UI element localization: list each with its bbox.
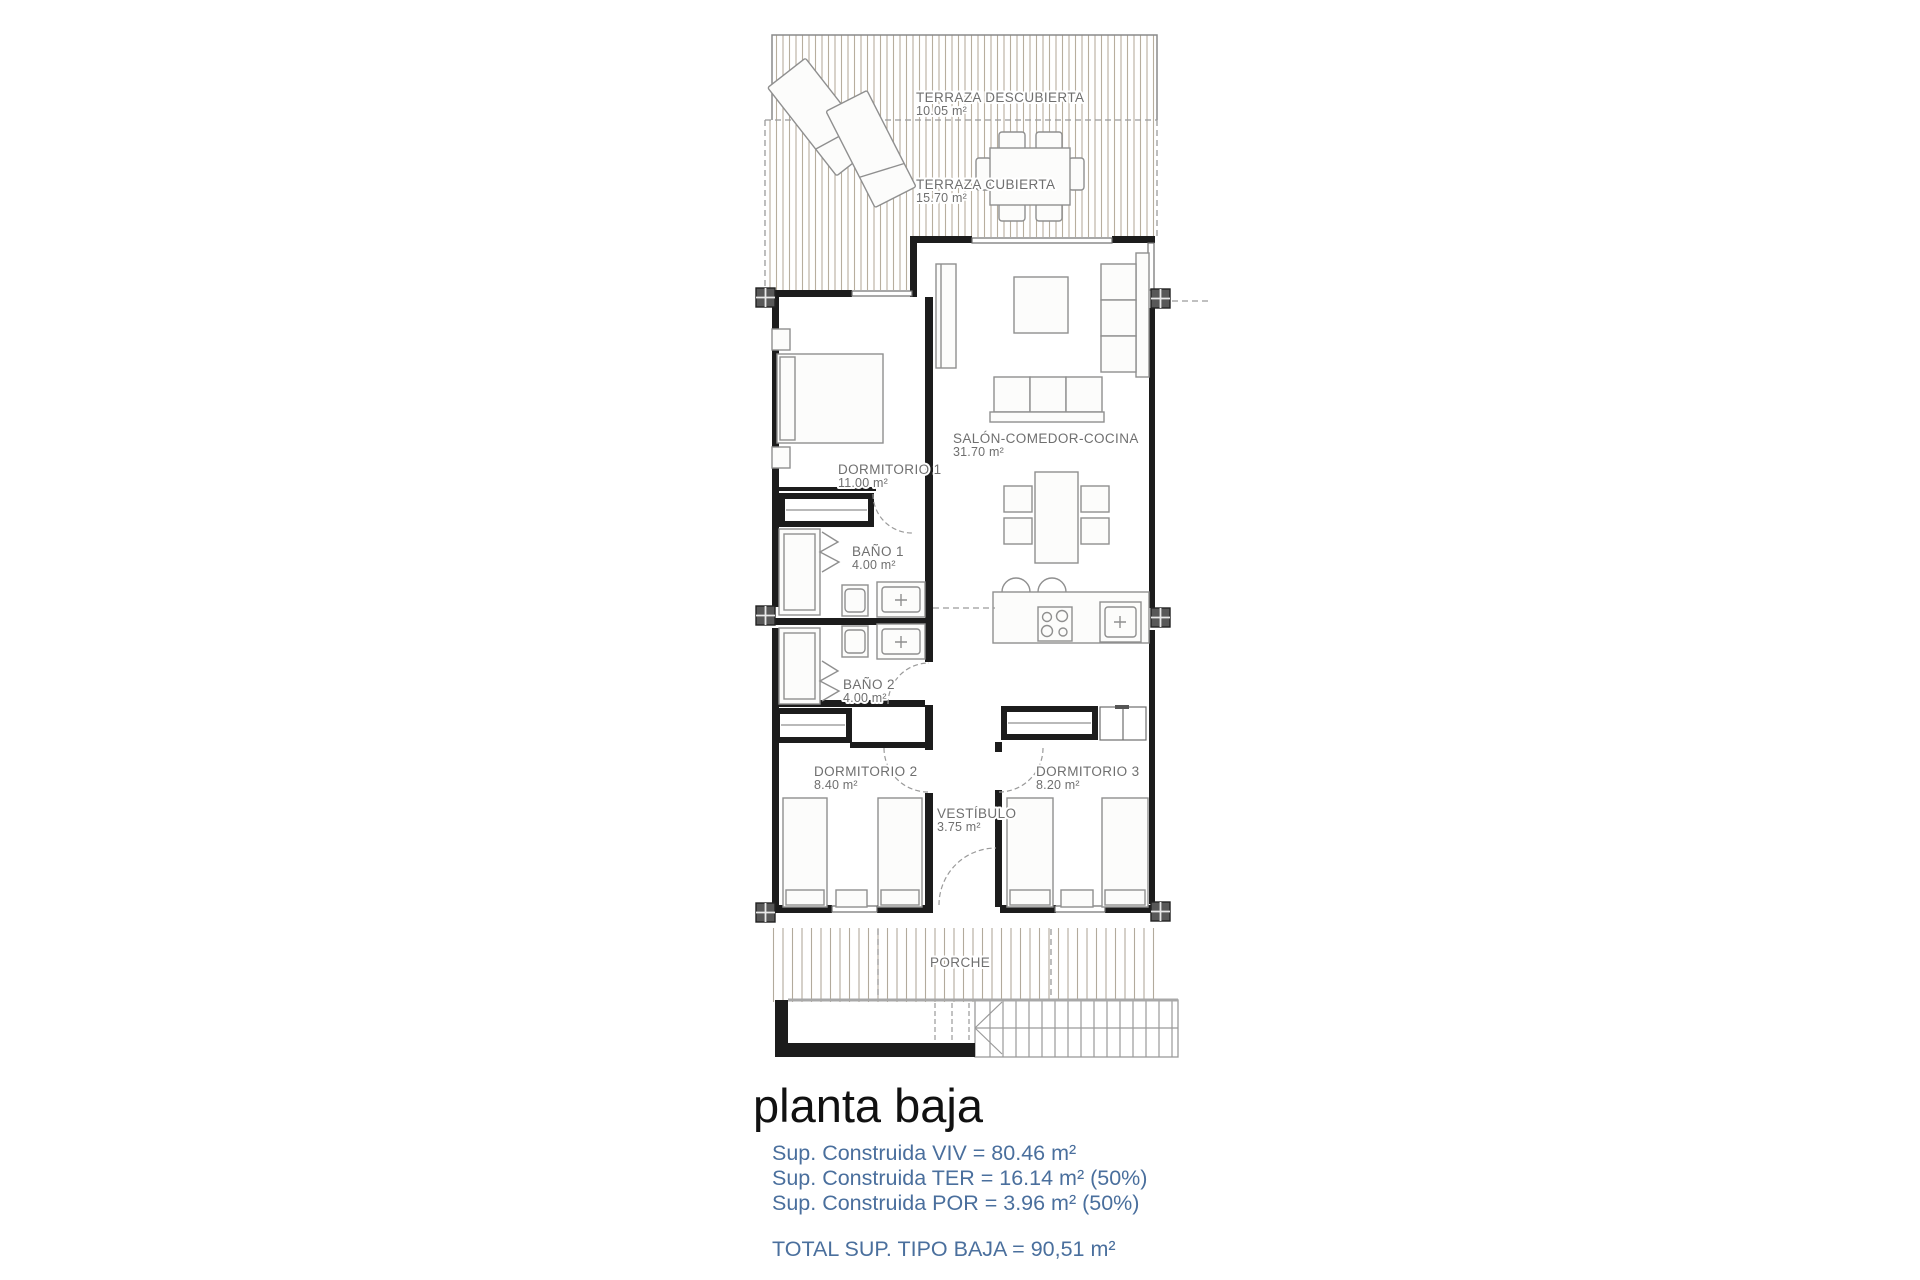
wall-dorm3-stub [995,742,1002,752]
door-entry [939,848,996,905]
label-bano1-name: BAÑO 1 [852,544,904,559]
shower-tray [779,529,820,615]
dining-set [1004,472,1109,563]
sofa-right [1101,253,1149,377]
stool [1038,578,1066,592]
nightstand [772,329,790,350]
wall-left-lower [772,628,779,905]
terraza-side-strip-hatch [765,237,912,290]
stool [1002,578,1030,592]
summary-line-viv: Sup. Construida VIV = 80.46 m² [772,1141,1076,1165]
terrace-area [765,35,1157,290]
label-vestibulo-area: 3.75 m² [937,820,981,834]
window-salon-top [972,238,1112,243]
floor-plan-page: TERRAZA DESCUBIERTA 10.05 m² TERRAZA CUB… [0,0,1920,1280]
wall-salon-top-left [910,236,972,243]
wall-step-dorm1-salon [910,237,917,297]
label-bano1-area: 4.00 m² [852,558,896,572]
label-salon-area: 31.70 m² [953,445,1004,459]
label-terraza-descubierta-name: TERRAZA DESCUBIERTA [916,90,1084,105]
sofa-bottom [990,377,1104,422]
pillar [1151,608,1170,627]
nightstand [1061,890,1093,907]
closet-handle [1115,705,1129,709]
label-salon-name: SALÓN-COMEDOR-COCINA [953,431,1139,446]
door-dorm1 [873,494,912,533]
label-dormitorio3-area: 8.20 m² [1036,778,1080,792]
wall-salon-top-right [1112,236,1155,243]
label-bano2-area: 4.00 m² [843,691,887,705]
wall-corridor-upper [925,493,933,662]
shower-screen [820,661,839,701]
summary-line-por: Sup. Construida POR = 3.96 m² (50%) [772,1191,1139,1215]
plan-title: planta baja [753,1079,984,1132]
nightstand [836,890,867,907]
tv-cabinet [936,264,956,368]
window-dorm1 [852,291,912,296]
label-porche-name: PORCHE [930,955,990,970]
bathroom1-fixtures [779,529,925,617]
landing-floor [790,1002,973,1043]
stair-landing [790,1002,973,1043]
kitchen-counter [993,578,1149,643]
label-dormitorio1-area: 11.00 m² [838,476,888,490]
pillar [756,288,775,307]
wall-dorm2-top [850,742,927,748]
floor-plan-svg: TERRAZA DESCUBIERTA 10.05 m² TERRAZA CUB… [0,0,1920,1280]
label-dormitorio3-name: DORMITORIO 3 [1036,764,1140,779]
footer: planta baja Sup. Construida VIV = 80.46 … [753,1079,1147,1261]
wall-right-upper [1149,308,1155,608]
wall-dorm2-right [925,793,933,905]
pillar [1151,902,1170,921]
summary-line-total: TOTAL SUP. TIPO BAJA = 90,51 m² [772,1237,1116,1261]
label-terraza-descubierta-area: 10.05 m² [916,104,967,118]
nightstand [772,447,790,468]
pillar [756,903,775,922]
bed-double [772,329,883,468]
label-bano2-name: BAÑO 2 [843,677,895,692]
exterior-stairs [775,1000,1178,1057]
label-vestibulo-name: VESTÍBULO [937,806,1016,821]
summary-line-ter: Sup. Construida TER = 16.14 m² (50%) [772,1166,1147,1190]
label-dormitorio2-name: DORMITORIO 2 [814,764,918,779]
surface-summary: Sup. Construida VIV = 80.46 m² Sup. Cons… [772,1141,1147,1261]
dorm3-beds [1007,798,1148,907]
label-dormitorio2-area: 8.40 m² [814,778,858,792]
label-dormitorio1-name: DORMITORIO 1 [838,462,942,477]
wall-right-lower [1149,630,1155,904]
shower-tray [779,628,820,704]
pillar [756,606,775,625]
wall-dorm1-top [772,290,852,297]
pillar [1151,289,1170,308]
stairs-bottom-wall [775,1043,975,1057]
shower-screen [820,532,839,572]
coffee-table [1014,277,1068,333]
label-terraza-cubierta-name: TERRAZA CUBIERTA [916,177,1055,192]
dorm2-beds [783,798,922,907]
label-terraza-cubierta-area: 15.70 m² [916,191,967,205]
